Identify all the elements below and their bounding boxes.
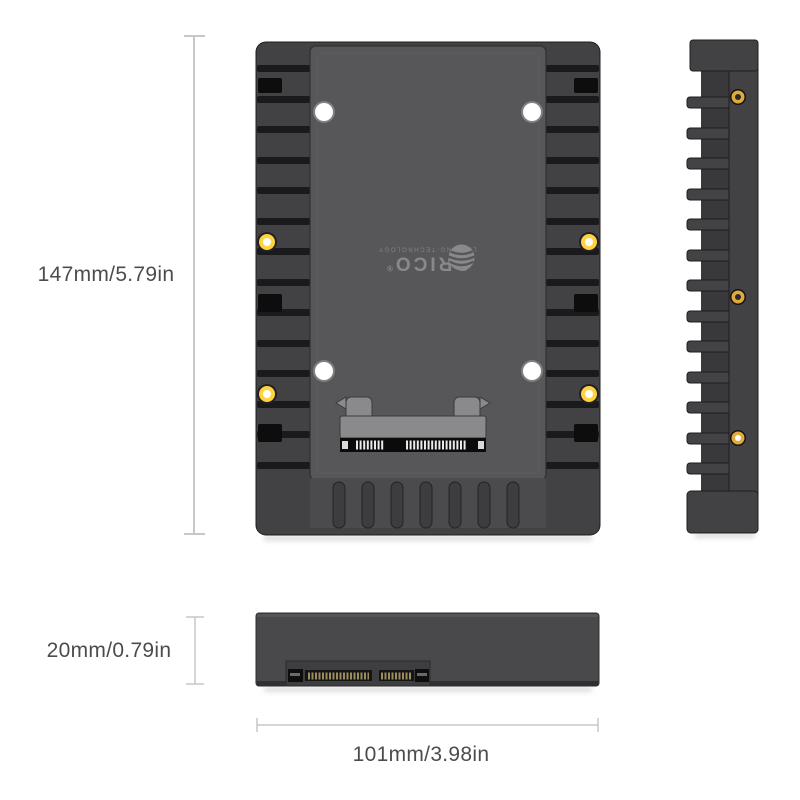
side-screw: [730, 430, 746, 446]
bottom-view: [256, 613, 599, 686]
sata-bracket-plate: [340, 416, 486, 438]
width-dimension-line: [257, 718, 598, 732]
connector-tab-slit: [290, 673, 300, 676]
side-bottom-block: [687, 491, 758, 533]
side-screw: [730, 289, 746, 305]
side-top-block: [690, 40, 758, 71]
height-dimension-label: 147mm/5.79in: [38, 263, 175, 287]
sata-end-tab: [342, 441, 348, 449]
sata-end-tab: [478, 441, 484, 449]
thickness-dimension-line: [186, 617, 204, 684]
connector-tab-slit: [417, 673, 427, 676]
diagram-graphics: [0, 0, 800, 800]
bottom-top-highlight: [257, 614, 598, 617]
orico-reg-mark: ®: [384, 264, 393, 272]
side-view: [687, 40, 758, 533]
orico-logo: ORICO® LEADING·TECHNOLOGY: [377, 246, 476, 273]
height-dimension-line: [184, 36, 205, 534]
product-dimension-diagram: ORICO® LEADING·TECHNOLOGY 147mm/5.79in 2…: [0, 0, 800, 800]
width-dimension-label: 101mm/3.98in: [353, 743, 490, 767]
front-view: [256, 42, 600, 535]
thickness-dimension-label: 20mm/0.79in: [47, 639, 172, 663]
orico-globe-icon: [447, 243, 477, 273]
side-screw: [730, 89, 746, 105]
bottom-connector: [288, 669, 429, 682]
side-spine: [729, 40, 758, 533]
